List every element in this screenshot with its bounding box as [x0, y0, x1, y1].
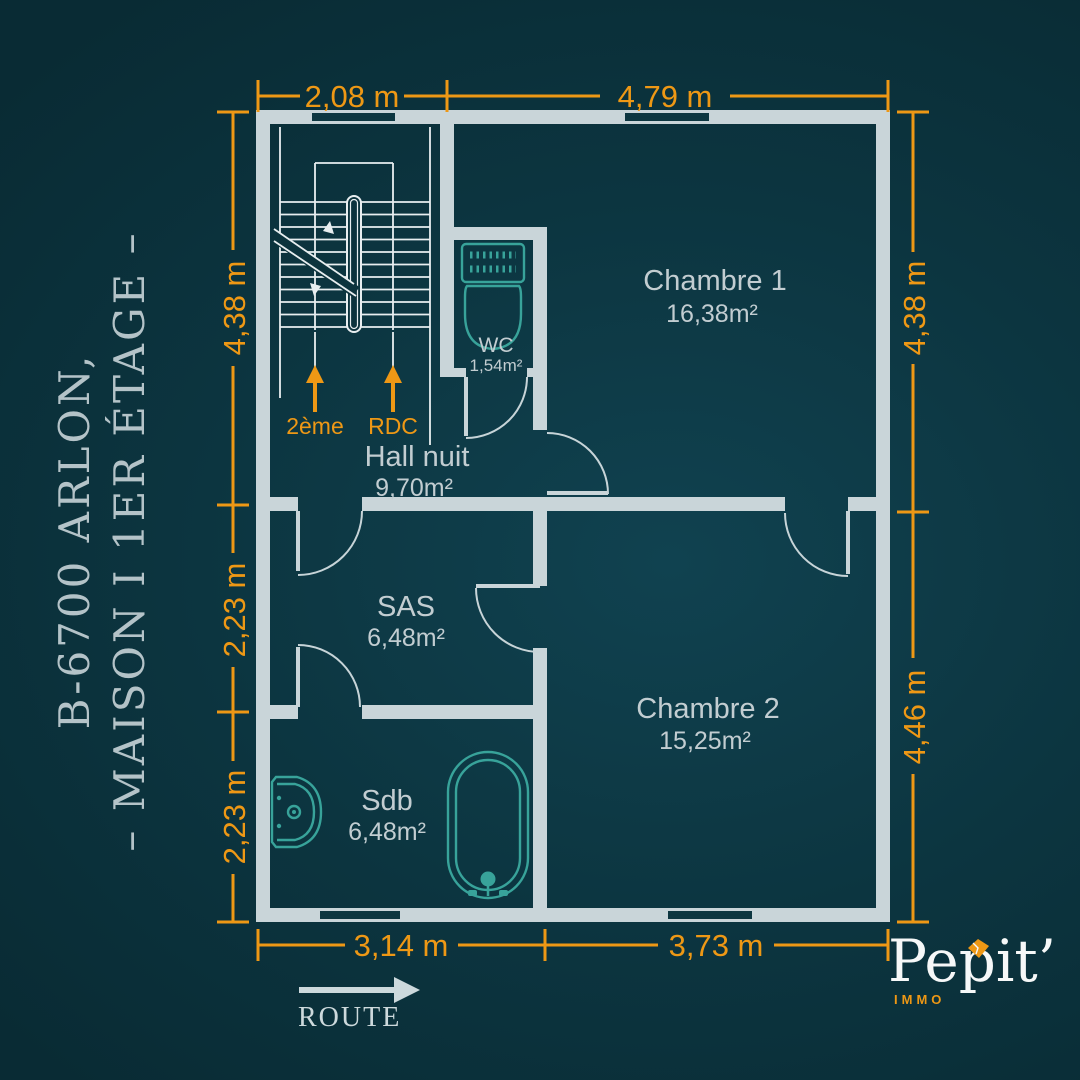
room-name: Chambre 1: [643, 265, 786, 297]
room-label-chambre1: Chambre 1 16,38m²: [643, 265, 786, 328]
route-arrow-icon: [299, 977, 420, 1003]
room-label-chambre2: Chambre 2 15,25m²: [636, 693, 779, 755]
stair-label-2eme: 2ème: [286, 413, 344, 439]
gem-icon: [966, 938, 992, 960]
dim-right-2: 4,46 m: [897, 670, 932, 765]
door-sdb: [298, 645, 360, 707]
floor-plan: 2ème RDC Chambre 1 16,38m² WC 1,54m² Hal…: [0, 0, 1080, 1080]
stair-arrow-2eme: [306, 365, 324, 412]
door-chambre2: [785, 511, 848, 576]
staircase: 2ème RDC: [274, 127, 430, 445]
route-indicator: ROUTE: [298, 977, 420, 1033]
dimension-top: 2,08 m 4,79 m: [258, 79, 888, 114]
room-area: 15,25m²: [659, 727, 751, 755]
stair-arrow-rdc: [384, 365, 402, 412]
room-name: Chambre 2: [636, 693, 779, 725]
dimension-right: 4,38 m 4,46 m: [897, 112, 932, 922]
dim-left-2: 2,23 m: [217, 563, 252, 658]
window-bottom-sdb: [320, 911, 400, 919]
dim-right-1: 4,38 m: [897, 261, 932, 356]
dim-left-3: 2,23 m: [217, 770, 252, 865]
stair-label-rdc: RDC: [368, 413, 418, 439]
room-area: 16,38m²: [666, 300, 758, 328]
bathtub-icon: [448, 752, 528, 898]
dim-bottom-1: 3,14 m: [354, 928, 449, 963]
room-name: Hall nuit: [365, 441, 470, 473]
room-label-sas: SAS 6,48m²: [367, 591, 445, 652]
stair-rail: [347, 196, 361, 332]
room-area: 9,70m²: [375, 474, 453, 502]
door-chambre1: [547, 433, 608, 494]
sink-icon: [272, 777, 321, 847]
dim-left-1: 4,38 m: [217, 261, 252, 356]
room-label-hall-nuit: Hall nuit 9,70m²: [365, 441, 470, 502]
room-area: 1,54m²: [470, 356, 523, 375]
dimension-bottom: 3,14 m 3,73 m: [258, 928, 888, 963]
dim-top-1: 2,08 m: [305, 79, 400, 114]
room-name: WC: [479, 334, 514, 357]
door-sas-top: [298, 511, 362, 575]
route-label: ROUTE: [298, 1002, 401, 1033]
door-sas-chambre2: [476, 586, 540, 652]
agency-logo: Pepit’ IMMO: [888, 932, 1058, 1042]
room-area: 6,48m²: [348, 818, 426, 846]
dim-top-2: 4,79 m: [618, 79, 713, 114]
room-name: SAS: [377, 591, 435, 623]
dim-bottom-2: 3,73 m: [669, 928, 764, 963]
dimension-left: 4,38 m 2,23 m 2,23 m: [217, 112, 252, 922]
door-wc: [466, 377, 527, 438]
window-top-stairwell: [312, 113, 395, 121]
room-area: 6,48m²: [367, 624, 445, 652]
window-top-chambre1: [625, 113, 709, 121]
room-label-sdb: Sdb 6,48m²: [348, 785, 426, 846]
room-name: Sdb: [361, 785, 413, 817]
window-bottom-chambre2: [668, 911, 752, 919]
